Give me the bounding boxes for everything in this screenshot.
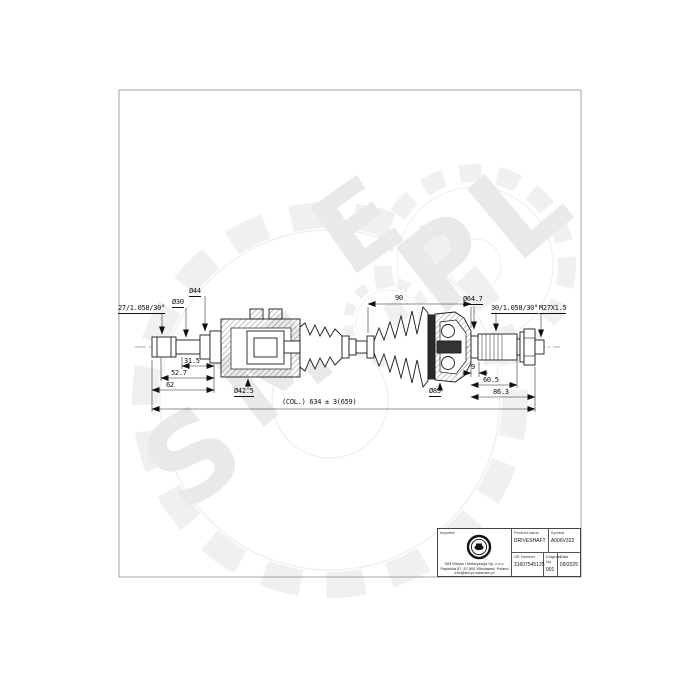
left-spline-stub xyxy=(152,337,176,357)
oe-number-value: 31607545125 xyxy=(514,562,541,568)
date-label: Date xyxy=(560,554,578,559)
shaft-d30-section xyxy=(176,340,200,354)
outer-boot-clamp xyxy=(367,336,374,358)
boot-joint-clamp xyxy=(428,315,435,379)
label-thread-spec: M27X1.5 xyxy=(539,305,566,314)
date-value: 09/2025 xyxy=(560,562,578,568)
driveshaft-linework xyxy=(0,0,700,700)
date-cell: Date 09/2025 xyxy=(558,553,580,576)
dim-52-7: 52.7 xyxy=(171,370,187,377)
label-diameter-30: Ø30 xyxy=(172,299,184,308)
symbol-label: Symbol xyxy=(551,530,578,535)
diagram-no-label: Diagram No xyxy=(546,554,555,564)
dim-86-3: 86.3 xyxy=(493,389,509,396)
product-name-value: DRIVESHAFT xyxy=(514,538,546,544)
right-spline-shaft xyxy=(478,334,517,360)
threaded-tip xyxy=(535,340,544,354)
outer-boot-bellows xyxy=(374,307,428,387)
symbol-value: A006V322 xyxy=(551,538,578,544)
title-block: Importer SIM Wtrysk i Motoryzacja Sp. z … xyxy=(437,528,581,577)
label-diameter-42-5: Ø42.5 xyxy=(234,388,254,397)
drawing-sheet-canvas: S M E P L xyxy=(0,0,700,700)
inner-boot-bellows xyxy=(300,323,342,371)
label-left-spline-spec: 27/1.058/30° xyxy=(118,305,165,314)
dim-31-5: 31.5 xyxy=(184,358,200,365)
dim-62: 62 xyxy=(166,382,174,389)
diagram-no-cell: Diagram No 001 xyxy=(544,553,558,576)
importer-address-line1: SIM Wtrysk i Motoryzacja Sp. z o.o. xyxy=(439,562,510,567)
importer-label: Importer xyxy=(440,530,455,535)
diagram-no-value: 001 xyxy=(546,567,555,573)
symbol-cell: Symbol A006V322 xyxy=(549,529,580,552)
oe-number-cell: OE Number 31607545125 xyxy=(512,553,544,576)
product-name-label: Product name xyxy=(514,530,546,535)
driveshaft-geometry xyxy=(152,307,544,387)
importer-logo-stamp xyxy=(466,534,492,560)
label-diameter-44: Ø44 xyxy=(189,288,201,297)
label-diameter-85: Ø85 xyxy=(429,388,441,397)
dim-9: 9 xyxy=(471,364,475,371)
dim-overall-length: (COL.) 634 ± 3(659) xyxy=(282,399,356,406)
hex-nut xyxy=(524,329,535,365)
oe-number-label: OE Number xyxy=(514,554,541,559)
label-right-spline-spec: 30/1.058/30° xyxy=(491,305,538,314)
collar-d44 xyxy=(210,331,221,363)
dim-90: 90 xyxy=(395,295,403,302)
mid-shaft xyxy=(356,341,367,353)
importer-cell: Importer SIM Wtrysk i Motoryzacja Sp. z … xyxy=(438,529,512,576)
sheet-border xyxy=(119,90,581,577)
washer xyxy=(520,332,524,362)
label-diameter-64-7: Ø64.7 xyxy=(463,296,483,305)
cv-ball-top xyxy=(442,325,455,338)
importer-address-line3: info@sim.pl www.sim.pl xyxy=(439,571,510,576)
product-name-cell: Product name DRIVESHAFT xyxy=(512,529,549,552)
dim-60-5: 60.5 xyxy=(483,377,499,384)
importer-address: SIM Wtrysk i Motoryzacja Sp. z o.o. Papi… xyxy=(439,562,510,576)
cv-ball-bottom xyxy=(442,357,455,370)
